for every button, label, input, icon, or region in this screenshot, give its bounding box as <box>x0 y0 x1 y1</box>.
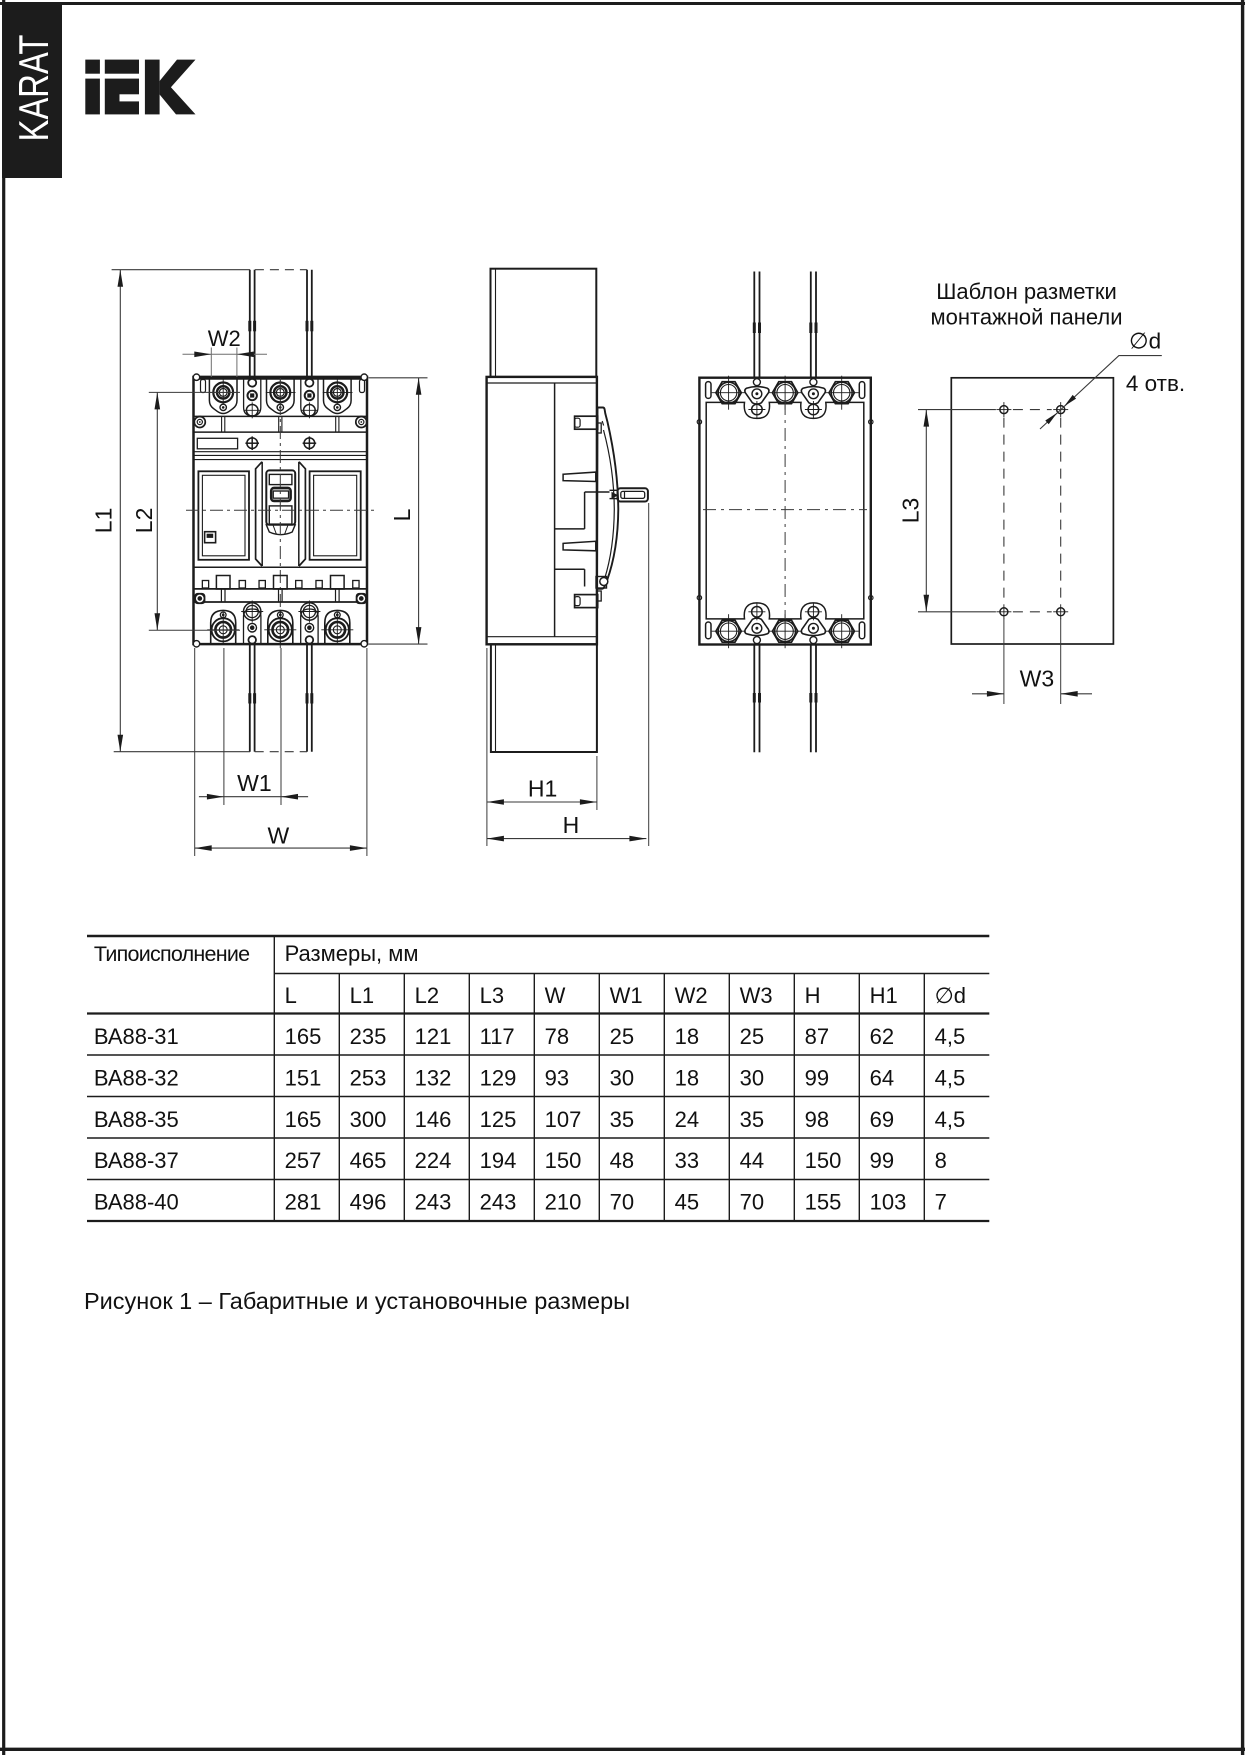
svg-text:165: 165 <box>285 1024 322 1049</box>
svg-text:125: 125 <box>480 1107 517 1132</box>
svg-text:129: 129 <box>480 1065 517 1090</box>
svg-text:W2: W2 <box>208 326 241 351</box>
svg-text:93: 93 <box>545 1065 569 1090</box>
svg-text:465: 465 <box>350 1148 387 1173</box>
svg-text:30: 30 <box>740 1065 764 1090</box>
svg-text:ВА88-32: ВА88-32 <box>94 1065 179 1090</box>
svg-text:99: 99 <box>870 1148 894 1173</box>
svg-text:L: L <box>285 983 297 1008</box>
svg-text:98: 98 <box>805 1107 829 1132</box>
svg-text:монтажной панели: монтажной панели <box>930 305 1122 330</box>
svg-text:4,5: 4,5 <box>935 1065 966 1090</box>
svg-text:L2: L2 <box>415 983 439 1008</box>
svg-text:194: 194 <box>480 1148 517 1173</box>
svg-text:L1: L1 <box>91 508 117 534</box>
svg-text:69: 69 <box>870 1107 894 1132</box>
svg-text:7: 7 <box>935 1190 947 1215</box>
svg-text:∅d: ∅d <box>935 983 966 1008</box>
svg-text:ВА88-35: ВА88-35 <box>94 1107 179 1132</box>
svg-text:243: 243 <box>480 1190 517 1215</box>
svg-text:243: 243 <box>415 1190 452 1215</box>
svg-text:4,5: 4,5 <box>935 1107 966 1132</box>
svg-text:4 отв.: 4 отв. <box>1126 371 1185 396</box>
svg-text:18: 18 <box>675 1024 699 1049</box>
svg-text:L1: L1 <box>350 983 374 1008</box>
svg-text:165: 165 <box>285 1107 322 1132</box>
svg-text:45: 45 <box>675 1190 699 1215</box>
svg-text:210: 210 <box>545 1190 582 1215</box>
svg-text:300: 300 <box>350 1107 387 1132</box>
svg-text:H: H <box>805 983 821 1008</box>
svg-text:W1: W1 <box>237 770 272 796</box>
svg-text:70: 70 <box>740 1190 764 1215</box>
svg-text:H: H <box>563 812 580 838</box>
svg-text:Шаблон разметки: Шаблон разметки <box>936 279 1117 304</box>
svg-text:W: W <box>268 823 290 849</box>
svg-text:W2: W2 <box>675 983 708 1008</box>
svg-text:8: 8 <box>935 1148 947 1173</box>
svg-text:48: 48 <box>610 1148 634 1173</box>
svg-text:103: 103 <box>870 1190 907 1215</box>
svg-text:132: 132 <box>415 1065 452 1090</box>
svg-text:L2: L2 <box>131 508 157 534</box>
svg-text:ВА88-37: ВА88-37 <box>94 1148 179 1173</box>
svg-text:∅d: ∅d <box>1129 329 1161 354</box>
svg-text:281: 281 <box>285 1190 322 1215</box>
svg-text:Типоисполнение: Типоисполнение <box>94 942 249 966</box>
svg-text:Рисунок 1 – Габаритные и устан: Рисунок 1 – Габаритные и установочные ра… <box>84 1288 630 1314</box>
svg-text:35: 35 <box>610 1107 634 1132</box>
svg-text:30: 30 <box>610 1065 634 1090</box>
svg-text:L3: L3 <box>898 498 924 524</box>
svg-text:W1: W1 <box>610 983 643 1008</box>
svg-text:78: 78 <box>545 1024 569 1049</box>
svg-text:4,5: 4,5 <box>935 1024 966 1049</box>
svg-text:62: 62 <box>870 1024 894 1049</box>
svg-text:235: 235 <box>350 1024 387 1049</box>
svg-text:151: 151 <box>285 1065 322 1090</box>
svg-text:H1: H1 <box>870 983 898 1008</box>
svg-text:224: 224 <box>415 1148 452 1173</box>
svg-text:70: 70 <box>610 1190 634 1215</box>
svg-text:253: 253 <box>350 1065 387 1090</box>
svg-text:44: 44 <box>740 1148 764 1173</box>
svg-text:18: 18 <box>675 1065 699 1090</box>
svg-text:35: 35 <box>740 1107 764 1132</box>
svg-text:W3: W3 <box>740 983 773 1008</box>
svg-text:64: 64 <box>870 1065 894 1090</box>
svg-text:L3: L3 <box>480 983 504 1008</box>
svg-text:W: W <box>545 983 566 1008</box>
svg-text:117: 117 <box>480 1024 515 1049</box>
svg-text:W3: W3 <box>1020 666 1055 692</box>
svg-text:33: 33 <box>675 1148 699 1173</box>
svg-text:ВА88-31: ВА88-31 <box>94 1024 179 1049</box>
svg-text:150: 150 <box>545 1148 582 1173</box>
svg-text:150: 150 <box>805 1148 842 1173</box>
svg-text:146: 146 <box>415 1107 452 1132</box>
svg-text:87: 87 <box>805 1024 829 1049</box>
svg-text:H1: H1 <box>528 776 557 802</box>
svg-text:257: 257 <box>285 1148 322 1173</box>
svg-text:155: 155 <box>805 1190 842 1215</box>
svg-text:107: 107 <box>545 1107 582 1132</box>
svg-text:25: 25 <box>610 1024 634 1049</box>
svg-text:KARAT: KARAT <box>10 35 57 142</box>
svg-text:99: 99 <box>805 1065 829 1090</box>
svg-text:24: 24 <box>675 1107 699 1132</box>
svg-text:Размеры, мм: Размеры, мм <box>285 941 419 966</box>
svg-text:L: L <box>389 508 415 521</box>
svg-text:25: 25 <box>740 1024 764 1049</box>
svg-text:496: 496 <box>350 1190 387 1215</box>
svg-text:121: 121 <box>415 1024 452 1049</box>
svg-text:ВА88-40: ВА88-40 <box>94 1190 179 1215</box>
